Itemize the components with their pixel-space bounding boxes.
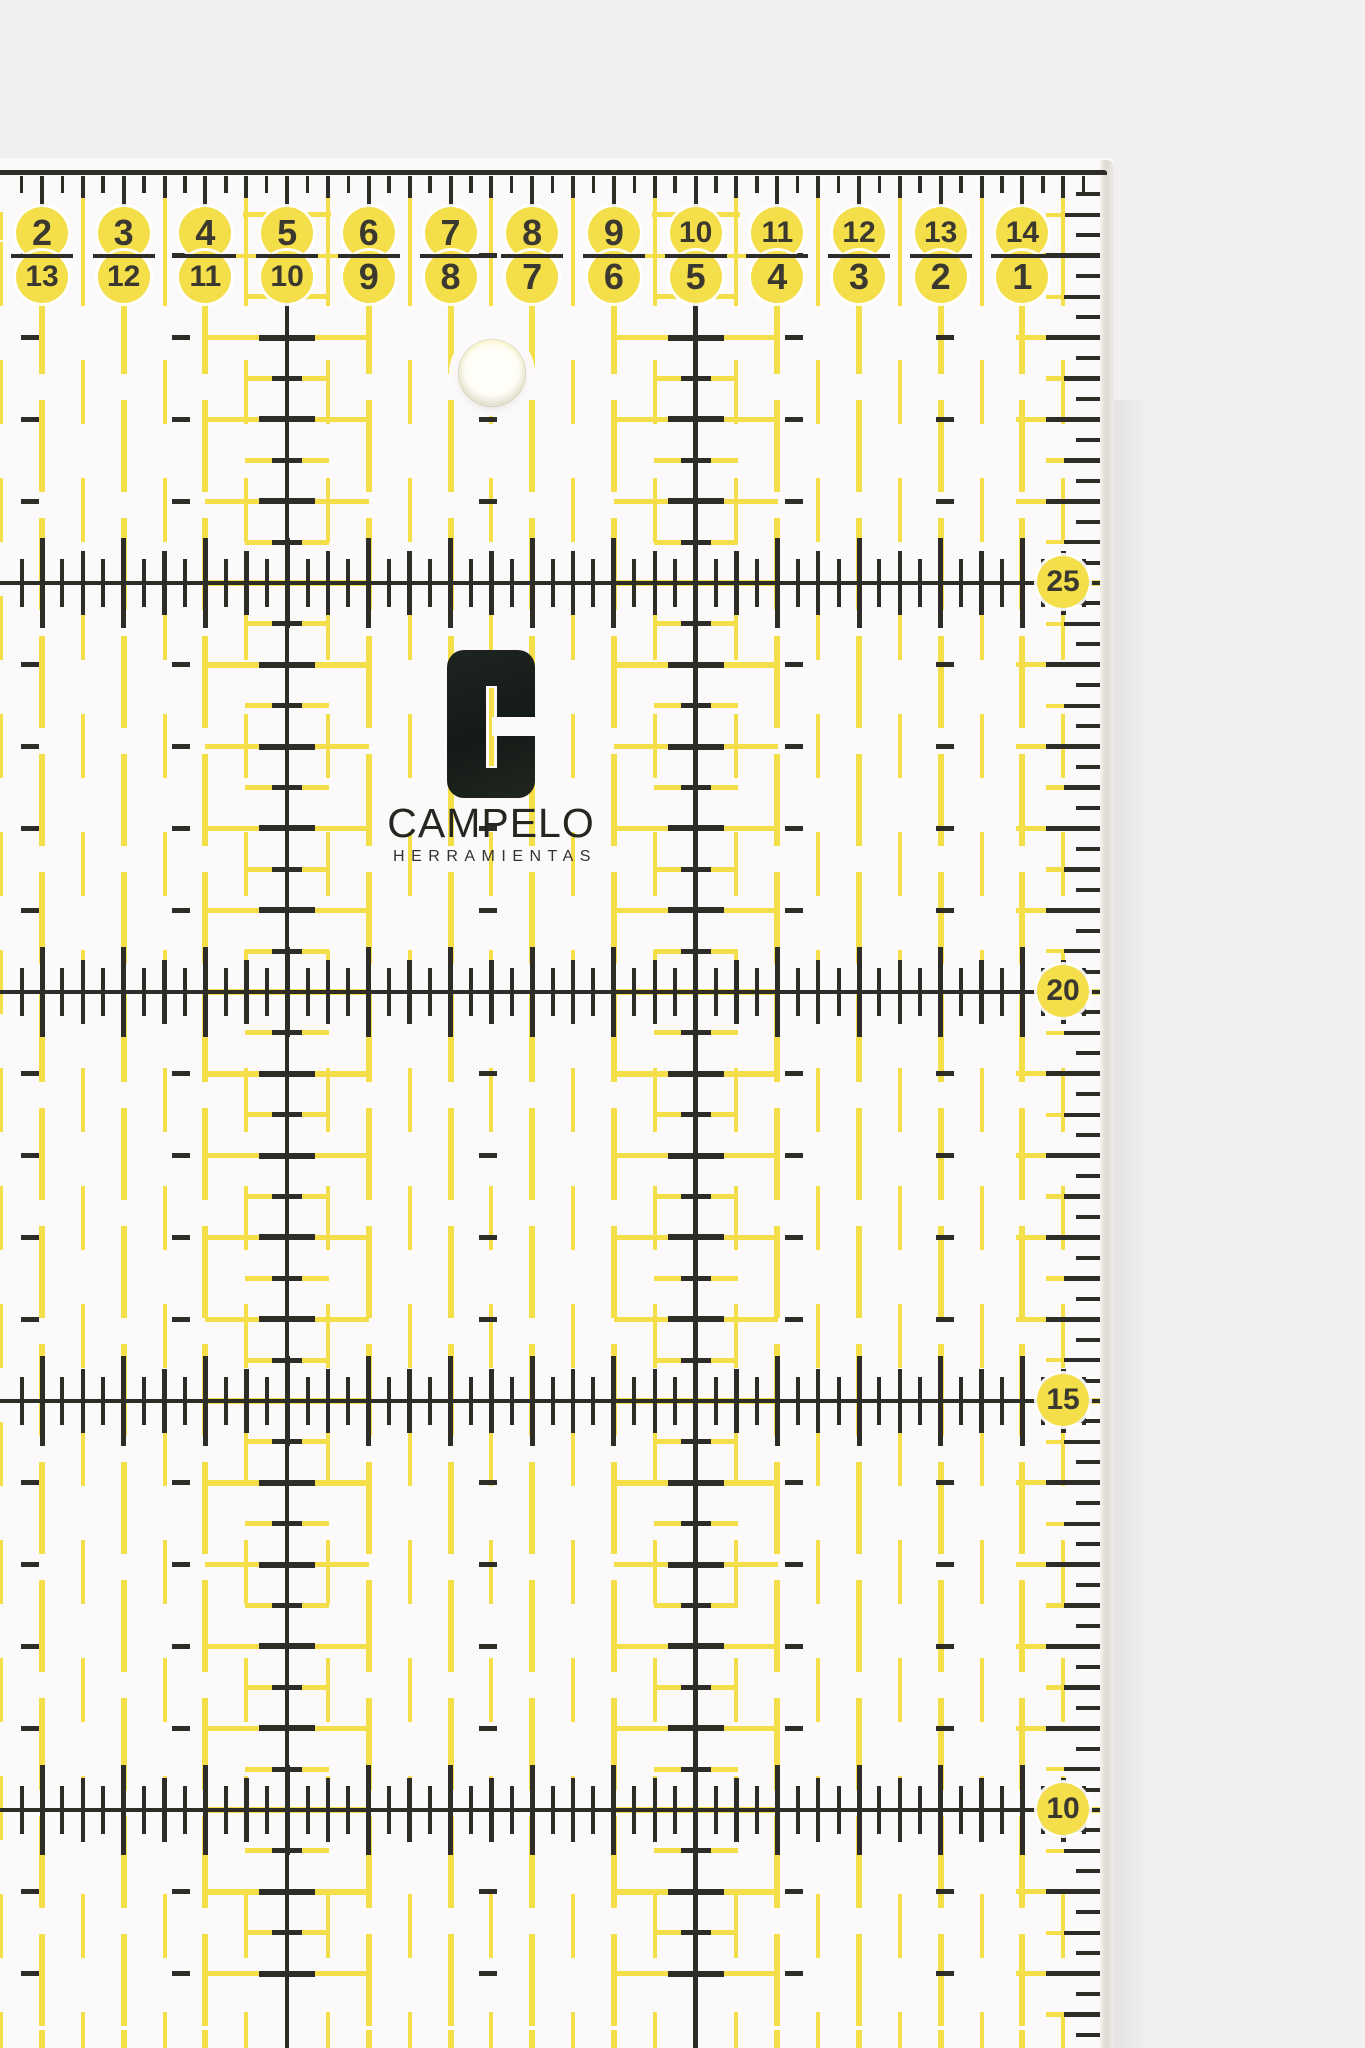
grid-black-rowtick [693, 538, 698, 628]
grid-black-rowtick [857, 1356, 862, 1446]
grid-black-dash [172, 499, 190, 504]
top-edge-halftick-yellow [326, 198, 330, 242]
right-edge-halftick-yellow [1046, 540, 1064, 545]
grid-black-rowtick [653, 1778, 658, 1842]
grid-black-rowtick [489, 1369, 494, 1433]
grid-black-cross [259, 1562, 315, 1568]
top-scale-number-secondary: 10 [261, 251, 313, 303]
top-edge-quartertick [183, 176, 187, 193]
right-edge-halftick [1064, 1113, 1100, 1118]
top-scale-number-secondary: 8 [425, 251, 477, 303]
top-scale-fraction-bar [910, 254, 972, 258]
right-edge-halftick [1064, 1603, 1100, 1608]
grid-black-rowtick [20, 1377, 24, 1425]
top-edge-halftick [898, 176, 902, 198]
grid-black-rowtick [959, 968, 963, 1016]
right-edge-cmtick-yellow [1016, 744, 1046, 749]
grid-black-cross [668, 1480, 724, 1486]
grid-black-dash [785, 744, 803, 749]
scale-number-text: 10 [1046, 1794, 1079, 1824]
grid-black-dash [21, 1562, 39, 1567]
top-scale-number-secondary: 7 [506, 251, 558, 303]
grid-black-rowtick [918, 968, 922, 1016]
right-edge-cmtick-yellow [1016, 1071, 1046, 1076]
grid-yellow-vline [408, 212, 412, 2048]
grid-yellow-vline [1061, 212, 1065, 2048]
right-edge-quartertick [1076, 601, 1100, 605]
top-edge-halftick-yellow [653, 198, 657, 242]
right-edge-quartertick [1076, 1583, 1100, 1587]
top-edge-halftick-yellow [980, 198, 984, 242]
grid-black-rowtick [60, 1786, 64, 1834]
grid-black-dash [479, 908, 497, 913]
grid-black-rowtick [448, 538, 453, 628]
grid-black-rowtick [673, 1377, 677, 1425]
grid-black-rowtick [183, 968, 187, 1016]
grid-black-dash [785, 908, 803, 913]
grid-black-dash [785, 417, 803, 422]
top-edge-quartertick [878, 176, 882, 193]
grid-black-dash [21, 1726, 39, 1731]
grid-black-rowtick [571, 551, 576, 615]
grid-black-rowtick [428, 1377, 432, 1425]
grid-black-rowtick [366, 1765, 371, 1855]
grid-black-dash [479, 1562, 497, 1567]
grid-black-halfcross [272, 703, 302, 708]
grid-black-dash [479, 1235, 497, 1240]
top-edge-halftick-yellow [816, 198, 820, 242]
grid-black-dash [785, 1480, 803, 1485]
grid-black-cross [259, 825, 315, 831]
grid-black-dash [936, 744, 954, 749]
grid-black-rowtick [653, 960, 658, 1024]
top-edge-halftick-yellow [898, 198, 902, 242]
grid-black-rowtick [755, 559, 759, 607]
grid-black-rowtick [1000, 1786, 1004, 1834]
scale-number-text: 12 [842, 218, 875, 248]
grid-black-dash [936, 335, 954, 340]
right-edge-quartertick [1076, 2033, 1100, 2037]
right-edge-halftick-yellow [1046, 867, 1064, 872]
grid-black-rowtick [877, 1377, 881, 1425]
top-scale-stem [203, 176, 207, 208]
grid-black-cross [259, 335, 315, 341]
grid-black-dash [21, 1317, 39, 1322]
top-scale-number-secondary: 13 [16, 251, 68, 303]
grid-black-rowtick [407, 1778, 412, 1842]
grid-black-dash [785, 335, 803, 340]
grid-black-cross [668, 335, 724, 341]
grid-black-rowtick [244, 960, 249, 1024]
grid-black-rowtick [244, 1369, 249, 1433]
grid-black-rowtick [203, 1765, 208, 1855]
right-edge-halftick-yellow [1046, 785, 1064, 790]
grid-black-rowtick [101, 1377, 105, 1425]
top-scale-stem [122, 176, 126, 208]
grid-black-dash [936, 908, 954, 913]
grid-black-cross [259, 744, 315, 750]
grid-black-rowtick [183, 559, 187, 607]
grid-black-rowtick [326, 1778, 331, 1842]
grid-black-dash [936, 1235, 954, 1240]
scale-number-text: 8 [440, 259, 460, 295]
right-edge-halftick-yellow [1046, 1603, 1064, 1608]
top-edge-halftick-yellow [489, 198, 493, 242]
grid-black-cross [259, 1971, 315, 1977]
grid-black-rowtick [632, 968, 636, 1016]
right-edge-quartertick [1076, 274, 1100, 278]
grid-black-rowtick [1000, 968, 1004, 1016]
grid-black-dash [479, 1153, 497, 1158]
grid-black-dash [936, 1971, 954, 1976]
right-edge-halftick [1064, 1031, 1100, 1036]
right-edge-quartertick [1076, 847, 1100, 851]
grid-black-dash [936, 1071, 954, 1076]
grid-black-dash [479, 417, 497, 422]
grid-black-cross [259, 1071, 315, 1077]
top-scale-number-secondary: 4 [751, 251, 803, 303]
right-edge-halftick-yellow [1046, 1194, 1064, 1199]
grid-black-rowtick [673, 1786, 677, 1834]
right-edge-quartertick [1076, 1951, 1100, 1955]
top-edge-halftick [163, 176, 167, 198]
grid-black-rowtick [755, 968, 759, 1016]
scale-number-text: 2 [931, 259, 951, 295]
grid-black-cross [668, 1316, 724, 1322]
right-edge-halftick [1064, 704, 1100, 709]
grid-black-rowtick [591, 968, 595, 1016]
grid-black-rowtick [387, 1377, 391, 1425]
grid-black-rowtick [20, 559, 24, 607]
grid-black-dash [936, 662, 954, 667]
grid-black-rowtick [285, 1765, 290, 1855]
grid-black-cross [259, 498, 315, 504]
grid-black-dash [479, 253, 497, 258]
grid-black-rowtick [346, 968, 350, 1016]
right-edge-halftick [1064, 295, 1100, 300]
right-edge-halftick [1064, 458, 1100, 463]
grid-black-rowtick [673, 559, 677, 607]
right-edge-cmtick [1046, 253, 1100, 258]
grid-black-dash [785, 1153, 803, 1158]
grid-black-halfcross [272, 1112, 302, 1117]
grid-black-rowtick [203, 538, 208, 628]
top-edge-quartertick [673, 176, 677, 193]
grid-black-cross [668, 1562, 724, 1568]
grid-black-halfcross [681, 1276, 711, 1281]
grid-black-rowtick [60, 559, 64, 607]
grid-black-dash [21, 335, 39, 340]
grid-black-rowtick [653, 551, 658, 615]
grid-black-rowtick [551, 559, 555, 607]
grid-black-dash [172, 1889, 190, 1894]
right-edge-halftick [1064, 1194, 1100, 1199]
grid-black-rowtick [285, 1356, 290, 1446]
grid-black-dash [172, 1480, 190, 1485]
grid-black-rowtick [121, 947, 126, 1037]
grid-black-rowtick [816, 1778, 821, 1842]
grid-black-rowtick [877, 968, 881, 1016]
top-edge-quartertick [306, 176, 310, 193]
grid-black-rowtick [265, 1786, 269, 1834]
right-edge-quartertick [1076, 1869, 1100, 1873]
top-edge-halftick [408, 176, 412, 198]
right-edge-halftick [1064, 1685, 1100, 1690]
right-edge-quartertick [1076, 1338, 1100, 1342]
right-edge-cmtick [1046, 908, 1100, 913]
grid-black-rowtick [387, 559, 391, 607]
grid-black-rowtick [346, 559, 350, 607]
top-scale-stem [1020, 176, 1024, 208]
grid-black-rowtick [796, 559, 800, 607]
grid-black-rowtick [60, 1377, 64, 1425]
grid-yellow-vline [980, 212, 984, 2048]
right-edge-halftick-yellow [1046, 1767, 1064, 1772]
ruler-top-edge-line [0, 170, 1107, 175]
right-scale-number: 15 [1037, 1374, 1089, 1426]
right-edge-cmtick-yellow [1016, 1889, 1046, 1894]
grid-black-rowtick [326, 960, 331, 1024]
grid-black-rowtick [796, 1786, 800, 1834]
top-edge-halftick-yellow [163, 198, 167, 242]
top-scale-fraction-bar [174, 254, 236, 258]
grid-black-rowtick [775, 947, 780, 1037]
top-scale-number-secondary: 11 [179, 251, 231, 303]
grid-black-rowtick [20, 968, 24, 1016]
top-edge-quartertick [265, 176, 269, 193]
grid-black-dash [21, 1971, 39, 1976]
grid-black-rowtick [734, 1369, 739, 1433]
right-edge-cmtick-yellow [1016, 1971, 1046, 1976]
top-edge-halftick [980, 176, 984, 198]
top-scale-number-secondary: 12 [98, 251, 150, 303]
grid-black-halfcross [272, 1685, 302, 1690]
top-edge-halftick-yellow [408, 198, 412, 242]
grid-yellow-vline [163, 212, 167, 2048]
top-scale-stem [694, 176, 698, 208]
top-scale-fraction-bar [501, 254, 563, 258]
right-edge-cmtick-yellow [1016, 908, 1046, 913]
grid-black-dash [21, 1480, 39, 1485]
right-edge-halftick [1064, 376, 1100, 381]
grid-black-rowtick [979, 1369, 984, 1433]
right-edge-halftick-yellow [1046, 1931, 1064, 1936]
grid-black-rowtick [898, 551, 903, 615]
grid-black-cross [668, 1643, 724, 1649]
grid-black-dash [172, 1644, 190, 1649]
grid-black-rowtick [428, 559, 432, 607]
top-edge-halftick [81, 176, 85, 198]
grid-black-rowtick [816, 1369, 821, 1433]
grid-black-rowtick [734, 551, 739, 615]
grid-black-dash [479, 1971, 497, 1976]
grid-black-rowtick [611, 1356, 616, 1446]
brand-logo: CAMPELO HERRAMIENTAS [372, 650, 610, 880]
top-scale-fraction-bar [11, 254, 73, 258]
right-edge-cmtick-yellow [1016, 662, 1046, 667]
grid-black-rowtick [20, 1786, 24, 1834]
grid-black-cross [668, 825, 724, 831]
scale-number-text: 9 [604, 215, 624, 251]
right-edge-cmtick [1046, 1235, 1100, 1240]
right-edge-quartertick [1076, 765, 1100, 769]
scale-number-text: 10 [270, 262, 303, 292]
grid-black-rowtick [632, 1786, 636, 1834]
grid-black-dash [172, 826, 190, 831]
top-edge-quartertick [592, 176, 596, 193]
grid-black-rowtick [837, 1786, 841, 1834]
grid-black-dash [936, 826, 954, 831]
top-scale-fraction-bar [338, 254, 400, 258]
grid-black-rowtick [489, 1778, 494, 1842]
grid-black-rowtick [571, 1778, 576, 1842]
top-edge-quartertick [224, 176, 228, 193]
grid-black-dash [479, 499, 497, 504]
scale-number-text: 25 [1046, 567, 1079, 597]
right-edge-cmtick-yellow [1016, 1317, 1046, 1322]
grid-black-dash [785, 662, 803, 667]
grid-black-rowtick [366, 538, 371, 628]
grid-black-cross [668, 1234, 724, 1240]
grid-black-dash [479, 1071, 497, 1076]
grid-black-dash [936, 499, 954, 504]
right-edge-halftick-yellow [1046, 376, 1064, 381]
grid-black-rowtick [510, 1377, 514, 1425]
grid-black-cross [259, 907, 315, 913]
grid-black-rowtick [224, 968, 228, 1016]
grid-black-dash [21, 826, 39, 831]
grid-black-rowtick [898, 1369, 903, 1433]
top-scale-fraction-bar [665, 254, 727, 258]
grid-black-dash [172, 908, 190, 913]
grid-black-dash [479, 1644, 497, 1649]
grid-black-rowtick [81, 1369, 86, 1433]
grid-black-cross [259, 1480, 315, 1486]
mounting-hole-icon [459, 340, 525, 406]
right-edge-cmtick [1046, 1153, 1100, 1158]
top-scale-number-secondary: 9 [343, 251, 395, 303]
right-edge-quartertick [1076, 315, 1100, 319]
grid-black-rowtick [244, 551, 249, 615]
grid-black-rowtick [121, 1356, 126, 1446]
grid-black-rowtick [632, 559, 636, 607]
grid-black-dash [21, 1153, 39, 1158]
grid-black-dash [936, 417, 954, 422]
grid-black-rowtick [591, 1786, 595, 1834]
grid-black-rowtick [673, 968, 677, 1016]
right-edge-cmtick-yellow [1016, 417, 1046, 422]
top-scale-stem [939, 176, 943, 208]
grid-black-dash [172, 1317, 190, 1322]
grid-black-rowtick [837, 559, 841, 607]
grid-black-rowtick [285, 947, 290, 1037]
right-edge-quartertick [1076, 929, 1100, 933]
top-edge-halftick-yellow [81, 198, 85, 242]
scale-number-text: 13 [924, 218, 957, 248]
grid-black-cross [259, 1889, 315, 1895]
grid-black-rowtick [714, 559, 718, 607]
grid-black-rowtick [632, 1377, 636, 1425]
right-edge-cmtick-yellow [1016, 1153, 1046, 1158]
grid-black-rowtick [448, 947, 453, 1037]
grid-black-rowtick [306, 559, 310, 607]
scale-number-text: 15 [1046, 1385, 1079, 1415]
top-scale-stem [367, 176, 371, 208]
right-edge-cmtick-yellow [1016, 1726, 1046, 1731]
grid-black-rowtick [40, 1356, 45, 1446]
grid-black-halfcross [681, 1685, 711, 1690]
grid-black-rowtick [510, 968, 514, 1016]
grid-black-rowtick [1020, 538, 1025, 628]
right-scale-number: 10 [1037, 1783, 1089, 1835]
grid-black-halfcross [681, 1112, 711, 1117]
top-scale-number-secondary: 3 [833, 251, 885, 303]
top-scale-fraction-bar [256, 254, 318, 258]
grid-yellow-vline [653, 212, 657, 2048]
scale-number-text: 10 [679, 218, 712, 248]
right-edge-cmtick [1046, 1971, 1100, 1976]
grid-black-rowtick [265, 559, 269, 607]
grid-black-dash [785, 1071, 803, 1076]
grid-black-cross [668, 744, 724, 750]
grid-black-rowtick [469, 1786, 473, 1834]
brand-tagline: HERRAMIENTAS [376, 848, 614, 866]
right-edge-cmtick-yellow [1016, 1480, 1046, 1485]
grid-black-dash [785, 1317, 803, 1322]
grid-black-rowtick [877, 1786, 881, 1834]
right-edge-quartertick [1076, 1051, 1100, 1055]
grid-black-rowtick [366, 1356, 371, 1446]
grid-black-rowtick [162, 551, 167, 615]
grid-black-halfcross [272, 1194, 302, 1199]
grid-black-rowtick [1000, 559, 1004, 607]
grid-black-rowtick [591, 559, 595, 607]
top-edge-quartertick [918, 176, 922, 193]
top-edge-halftick-yellow [244, 198, 248, 242]
grid-black-dash [172, 744, 190, 749]
top-edge-halftick-yellow [1061, 198, 1065, 242]
grid-black-halfcross [681, 376, 711, 381]
right-edge-cmtick [1046, 826, 1100, 831]
right-edge-quartertick [1076, 1910, 1100, 1914]
right-edge-halftick-yellow [1046, 1440, 1064, 1445]
right-edge-quartertick [1076, 1092, 1100, 1096]
grid-black-rowtick [693, 1765, 698, 1855]
right-edge-quartertick [1076, 192, 1100, 196]
grid-black-rowtick [1020, 1765, 1025, 1855]
right-edge-halftick-yellow [1046, 949, 1064, 954]
grid-yellow-vline [734, 212, 738, 2048]
grid-black-halfcross [681, 1194, 711, 1199]
right-edge-quartertick [1076, 1297, 1100, 1301]
grid-black-dash [936, 1153, 954, 1158]
grid-black-dash [172, 417, 190, 422]
right-edge-cmtick [1046, 417, 1100, 422]
grid-black-rowtick [918, 1377, 922, 1425]
grid-black-rowtick [162, 960, 167, 1024]
grid-black-rowtick [530, 947, 535, 1037]
grid-black-rowtick [265, 968, 269, 1016]
right-edge-cmtick-yellow [1016, 1235, 1046, 1240]
grid-black-rowtick [898, 960, 903, 1024]
scale-number-text: 14 [1006, 218, 1039, 248]
right-scale-number: 20 [1037, 965, 1089, 1017]
grid-black-cross [668, 662, 724, 668]
ruler-edge-shadow [1114, 400, 1148, 2048]
grid-black-cross [668, 1153, 724, 1159]
grid-black-rowtick [387, 1786, 391, 1834]
grid-black-halfcross [272, 867, 302, 872]
